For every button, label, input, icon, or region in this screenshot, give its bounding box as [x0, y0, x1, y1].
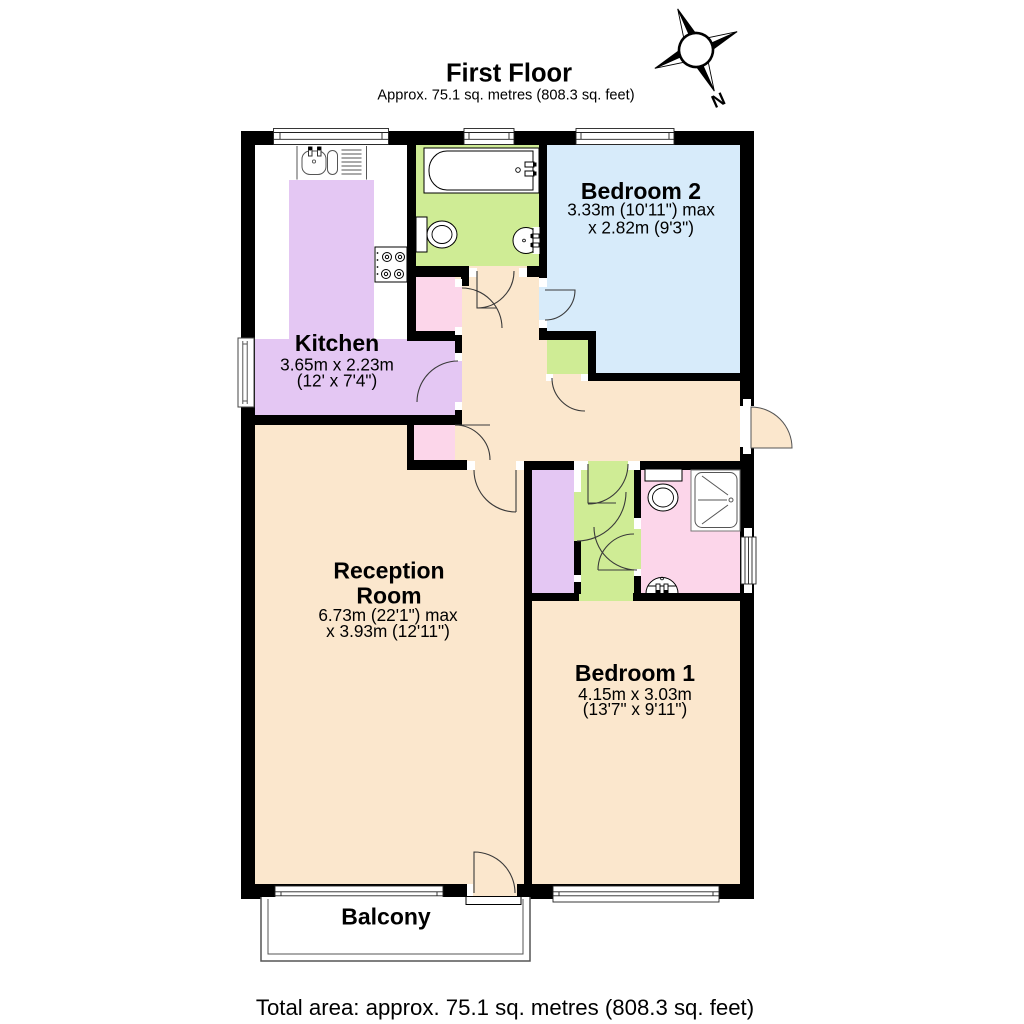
svg-text:Balcony: Balcony [341, 904, 431, 930]
svg-text:(13'7" x 9'11"): (13'7" x 9'11") [583, 699, 687, 719]
svg-text:First Floor: First Floor [446, 60, 572, 88]
svg-text:Reception: Reception [333, 558, 444, 584]
svg-text:Kitchen: Kitchen [295, 330, 379, 356]
svg-text:x 2.82m (9'3"): x 2.82m (9'3") [588, 218, 694, 238]
svg-text:x 3.93m (12'11"): x 3.93m (12'11") [326, 621, 450, 641]
svg-text:Approx. 75.1 sq. metres (808.3: Approx. 75.1 sq. metres (808.3 sq. feet) [377, 88, 634, 104]
svg-text:Total area: approx. 75.1 sq. m: Total area: approx. 75.1 sq. metres (808… [256, 995, 754, 1020]
svg-text:Bedroom 1: Bedroom 1 [575, 660, 695, 686]
svg-text:(12' x 7'4"): (12' x 7'4") [297, 371, 378, 391]
svg-text:3.33m (10'11") max: 3.33m (10'11") max [567, 200, 715, 220]
